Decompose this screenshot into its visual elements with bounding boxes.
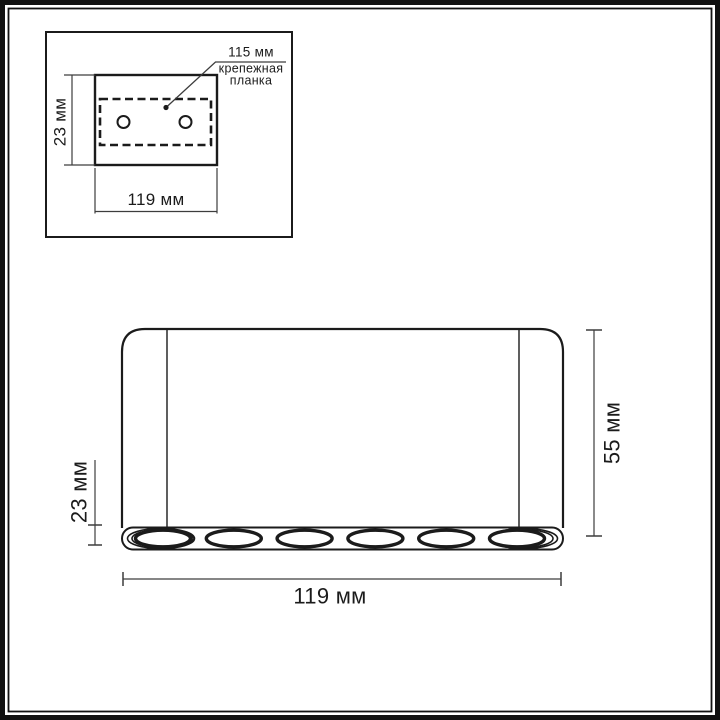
width-label: 119 мм [293, 584, 366, 609]
drawing-page: 115 мм крепежная планка 23 мм 119 мм [0, 0, 720, 720]
led-spot-5 [419, 530, 474, 547]
fixture-body-outline [122, 329, 563, 528]
inset-top-view: 115 мм крепежная планка 23 мм 119 мм [46, 32, 292, 237]
inset-width-label: 119 мм [127, 190, 184, 209]
height-label: 55 мм [600, 402, 625, 464]
bracket-length-label: 115 мм [228, 45, 274, 60]
led-spot-1 [136, 530, 191, 547]
front-view: 55 мм 23 мм 119 мм [67, 329, 625, 609]
fixture-dimension-drawing: 115 мм крепежная планка 23 мм 119 мм [0, 0, 720, 720]
bracket-leader-dot [163, 105, 168, 110]
led-spot-6 [490, 530, 545, 547]
trim-height-label: 23 мм [67, 461, 92, 523]
mounting-hole-left [118, 116, 130, 128]
inset-depth-label: 23 мм [51, 98, 70, 147]
outer-frame [3, 3, 718, 718]
led-spot-4 [348, 530, 403, 547]
led-spot-2 [206, 530, 261, 547]
mounting-hole-right [180, 116, 192, 128]
plate-outline [95, 75, 217, 165]
bracket-caption-line2: планка [230, 74, 272, 88]
led-spot-3 [277, 530, 332, 547]
